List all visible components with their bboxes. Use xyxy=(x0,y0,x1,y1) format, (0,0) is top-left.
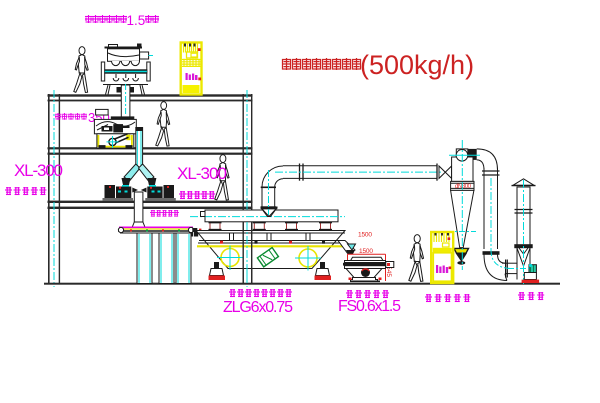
svg-text:1.5: 1.5 xyxy=(127,13,146,28)
svg-text:dN300: dN300 xyxy=(455,184,472,190)
svg-text:XL-300: XL-300 xyxy=(14,161,63,180)
svg-text:FS0.6x1.5: FS0.6x1.5 xyxy=(338,298,401,315)
svg-text:1500: 1500 xyxy=(358,232,372,239)
svg-text:(500kg/h): (500kg/h) xyxy=(360,50,474,80)
svg-text:XL-300: XL-300 xyxy=(177,164,227,183)
svg-text:ZLG6x0.75: ZLG6x0.75 xyxy=(223,299,293,316)
